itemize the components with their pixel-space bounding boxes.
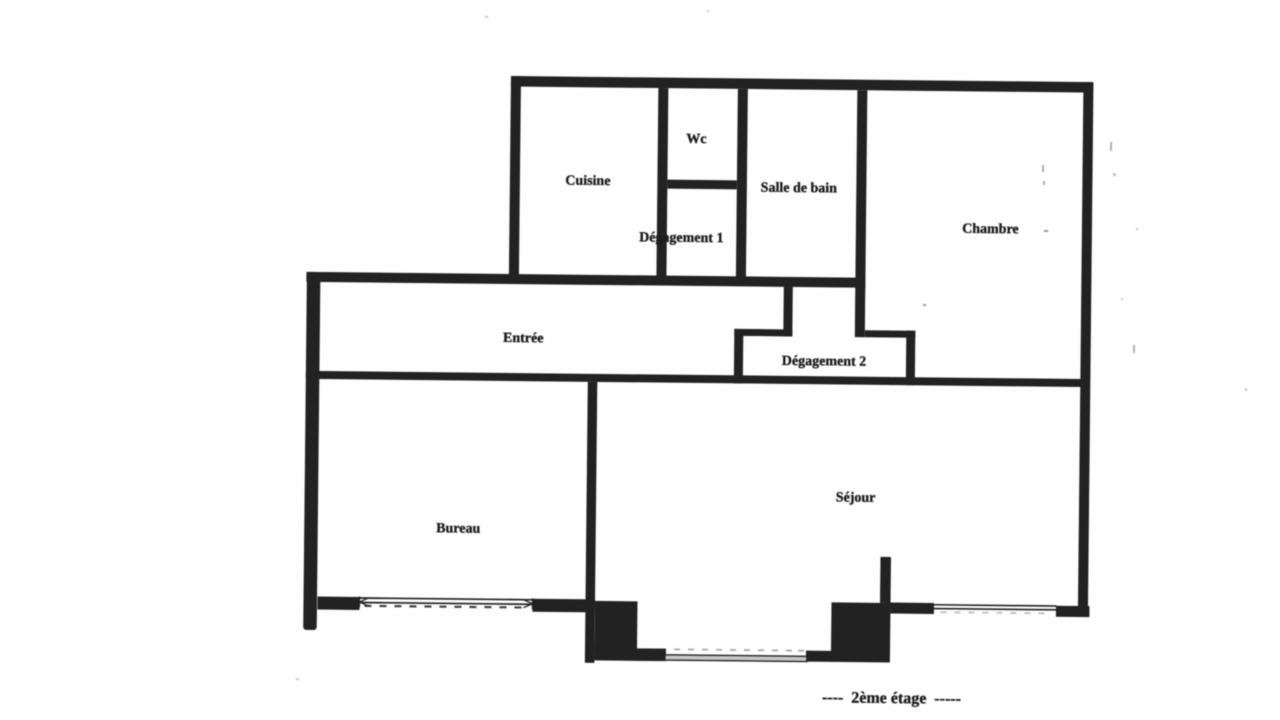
svg-text:Séjour: Séjour <box>836 490 876 505</box>
svg-text:Salle de bain: Salle de bain <box>761 181 838 197</box>
svg-text:Dégagement 1: Dégagement 1 <box>639 230 724 246</box>
svg-text:Cuisine: Cuisine <box>565 174 610 189</box>
svg-text:Bureau: Bureau <box>436 521 480 536</box>
svg-text:Chambre: Chambre <box>962 222 1019 238</box>
svg-text:Wc: Wc <box>686 132 706 147</box>
svg-text:---- 2ème étage -----: ---- 2ème étage ----- <box>822 689 961 707</box>
svg-text:Entrée: Entrée <box>503 331 544 346</box>
svg-text:Dégagement 2: Dégagement 2 <box>782 354 867 370</box>
